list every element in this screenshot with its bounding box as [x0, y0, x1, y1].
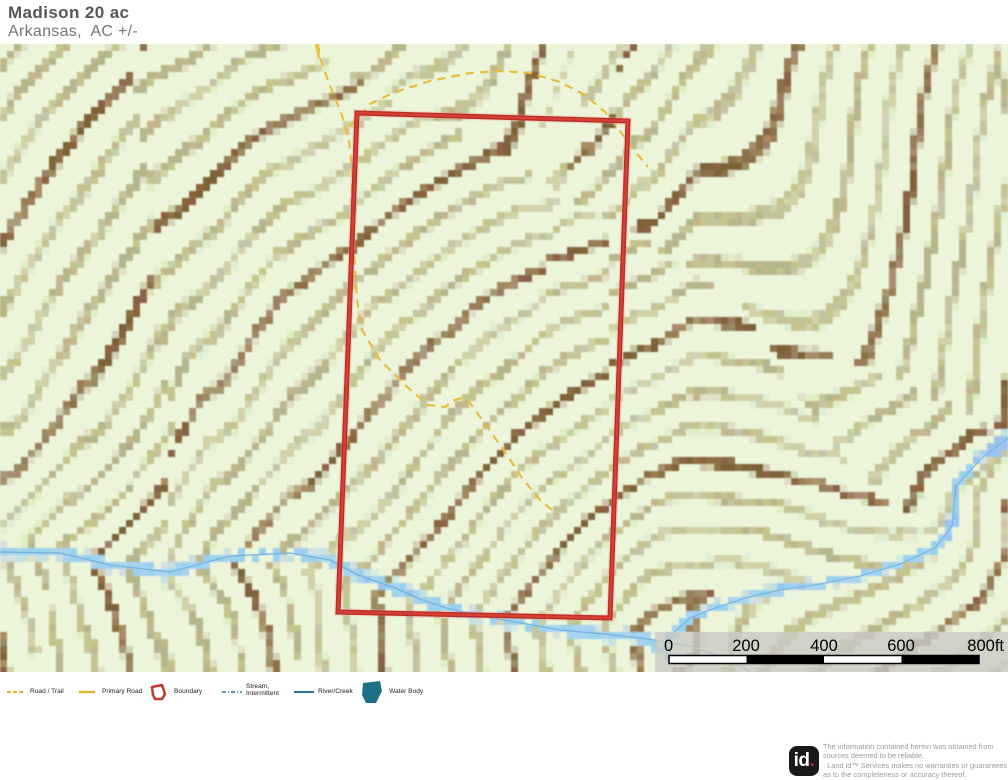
svg-text:200: 200: [732, 637, 760, 655]
svg-text:800ft: 800ft: [967, 637, 1004, 655]
svg-text:400: 400: [810, 637, 838, 655]
svg-text:0: 0: [664, 637, 673, 655]
svg-text:600: 600: [887, 637, 915, 655]
